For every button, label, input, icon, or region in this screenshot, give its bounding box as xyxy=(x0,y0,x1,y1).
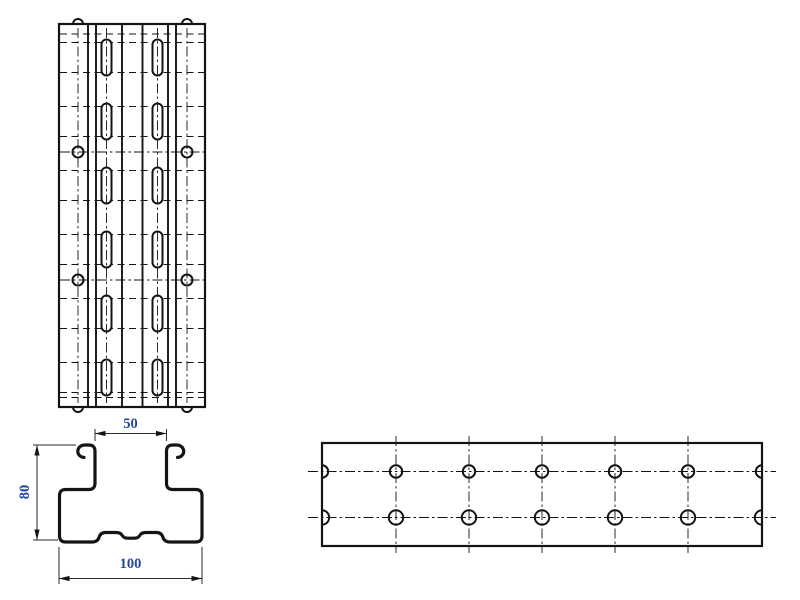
dimension-left-height xyxy=(33,445,76,540)
side-view xyxy=(308,436,776,553)
section-view: 50 80 100 xyxy=(17,416,202,584)
engineering-drawing: 50 80 100 xyxy=(0,0,800,600)
plan-outline xyxy=(59,24,205,407)
plan-view xyxy=(59,19,205,412)
dimension-label-50: 50 xyxy=(123,416,138,432)
section-profile-outline xyxy=(60,445,203,542)
dimension-label-80: 80 xyxy=(17,485,33,500)
drawing-canvas: 50 80 100 xyxy=(0,0,800,600)
dimension-label-100: 100 xyxy=(120,556,142,572)
